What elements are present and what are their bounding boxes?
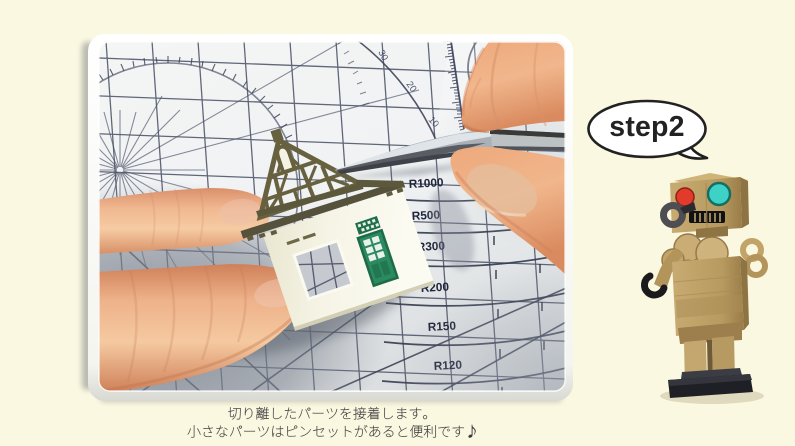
svg-text:step2: step2 [609, 111, 684, 143]
